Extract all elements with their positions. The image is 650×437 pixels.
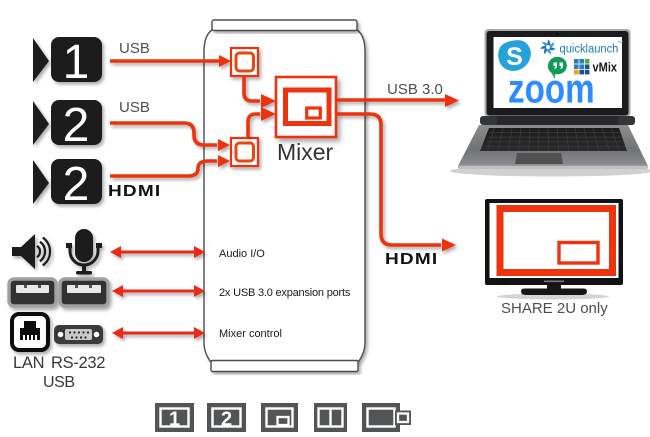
svg-text:2: 2 [63,158,90,211]
svg-text:quicklaunch: quicklaunch [560,42,619,56]
svg-text:USB: USB [119,99,150,116]
svg-text:1: 1 [63,36,90,89]
svg-text:Mixer control: Mixer control [219,328,282,340]
svg-text:RS-232: RS-232 [51,354,105,372]
svg-text:2: 2 [221,409,232,431]
svg-text:1: 1 [169,409,180,431]
svg-text:2x USB 3.0 expansion ports: 2x USB 3.0 expansion ports [219,287,351,299]
svg-text:HDMI: HDMI [385,249,438,267]
svg-text:USB: USB [43,374,75,391]
svg-text:HDMI: HDMI [108,181,161,199]
svg-text:LAN: LAN [13,354,44,372]
svg-text:SHARE 2U only: SHARE 2U only [501,300,608,317]
svg-text:USB 3.0: USB 3.0 [387,81,443,98]
svg-text:TM: TM [617,40,623,45]
svg-text:Audio I/O: Audio I/O [219,248,265,260]
svg-text:Mixer: Mixer [277,139,334,165]
svg-text:vMix: vMix [593,60,618,75]
svg-text:USB: USB [119,40,150,57]
svg-text:2: 2 [63,99,90,152]
svg-text:zoom: zoom [508,65,595,111]
